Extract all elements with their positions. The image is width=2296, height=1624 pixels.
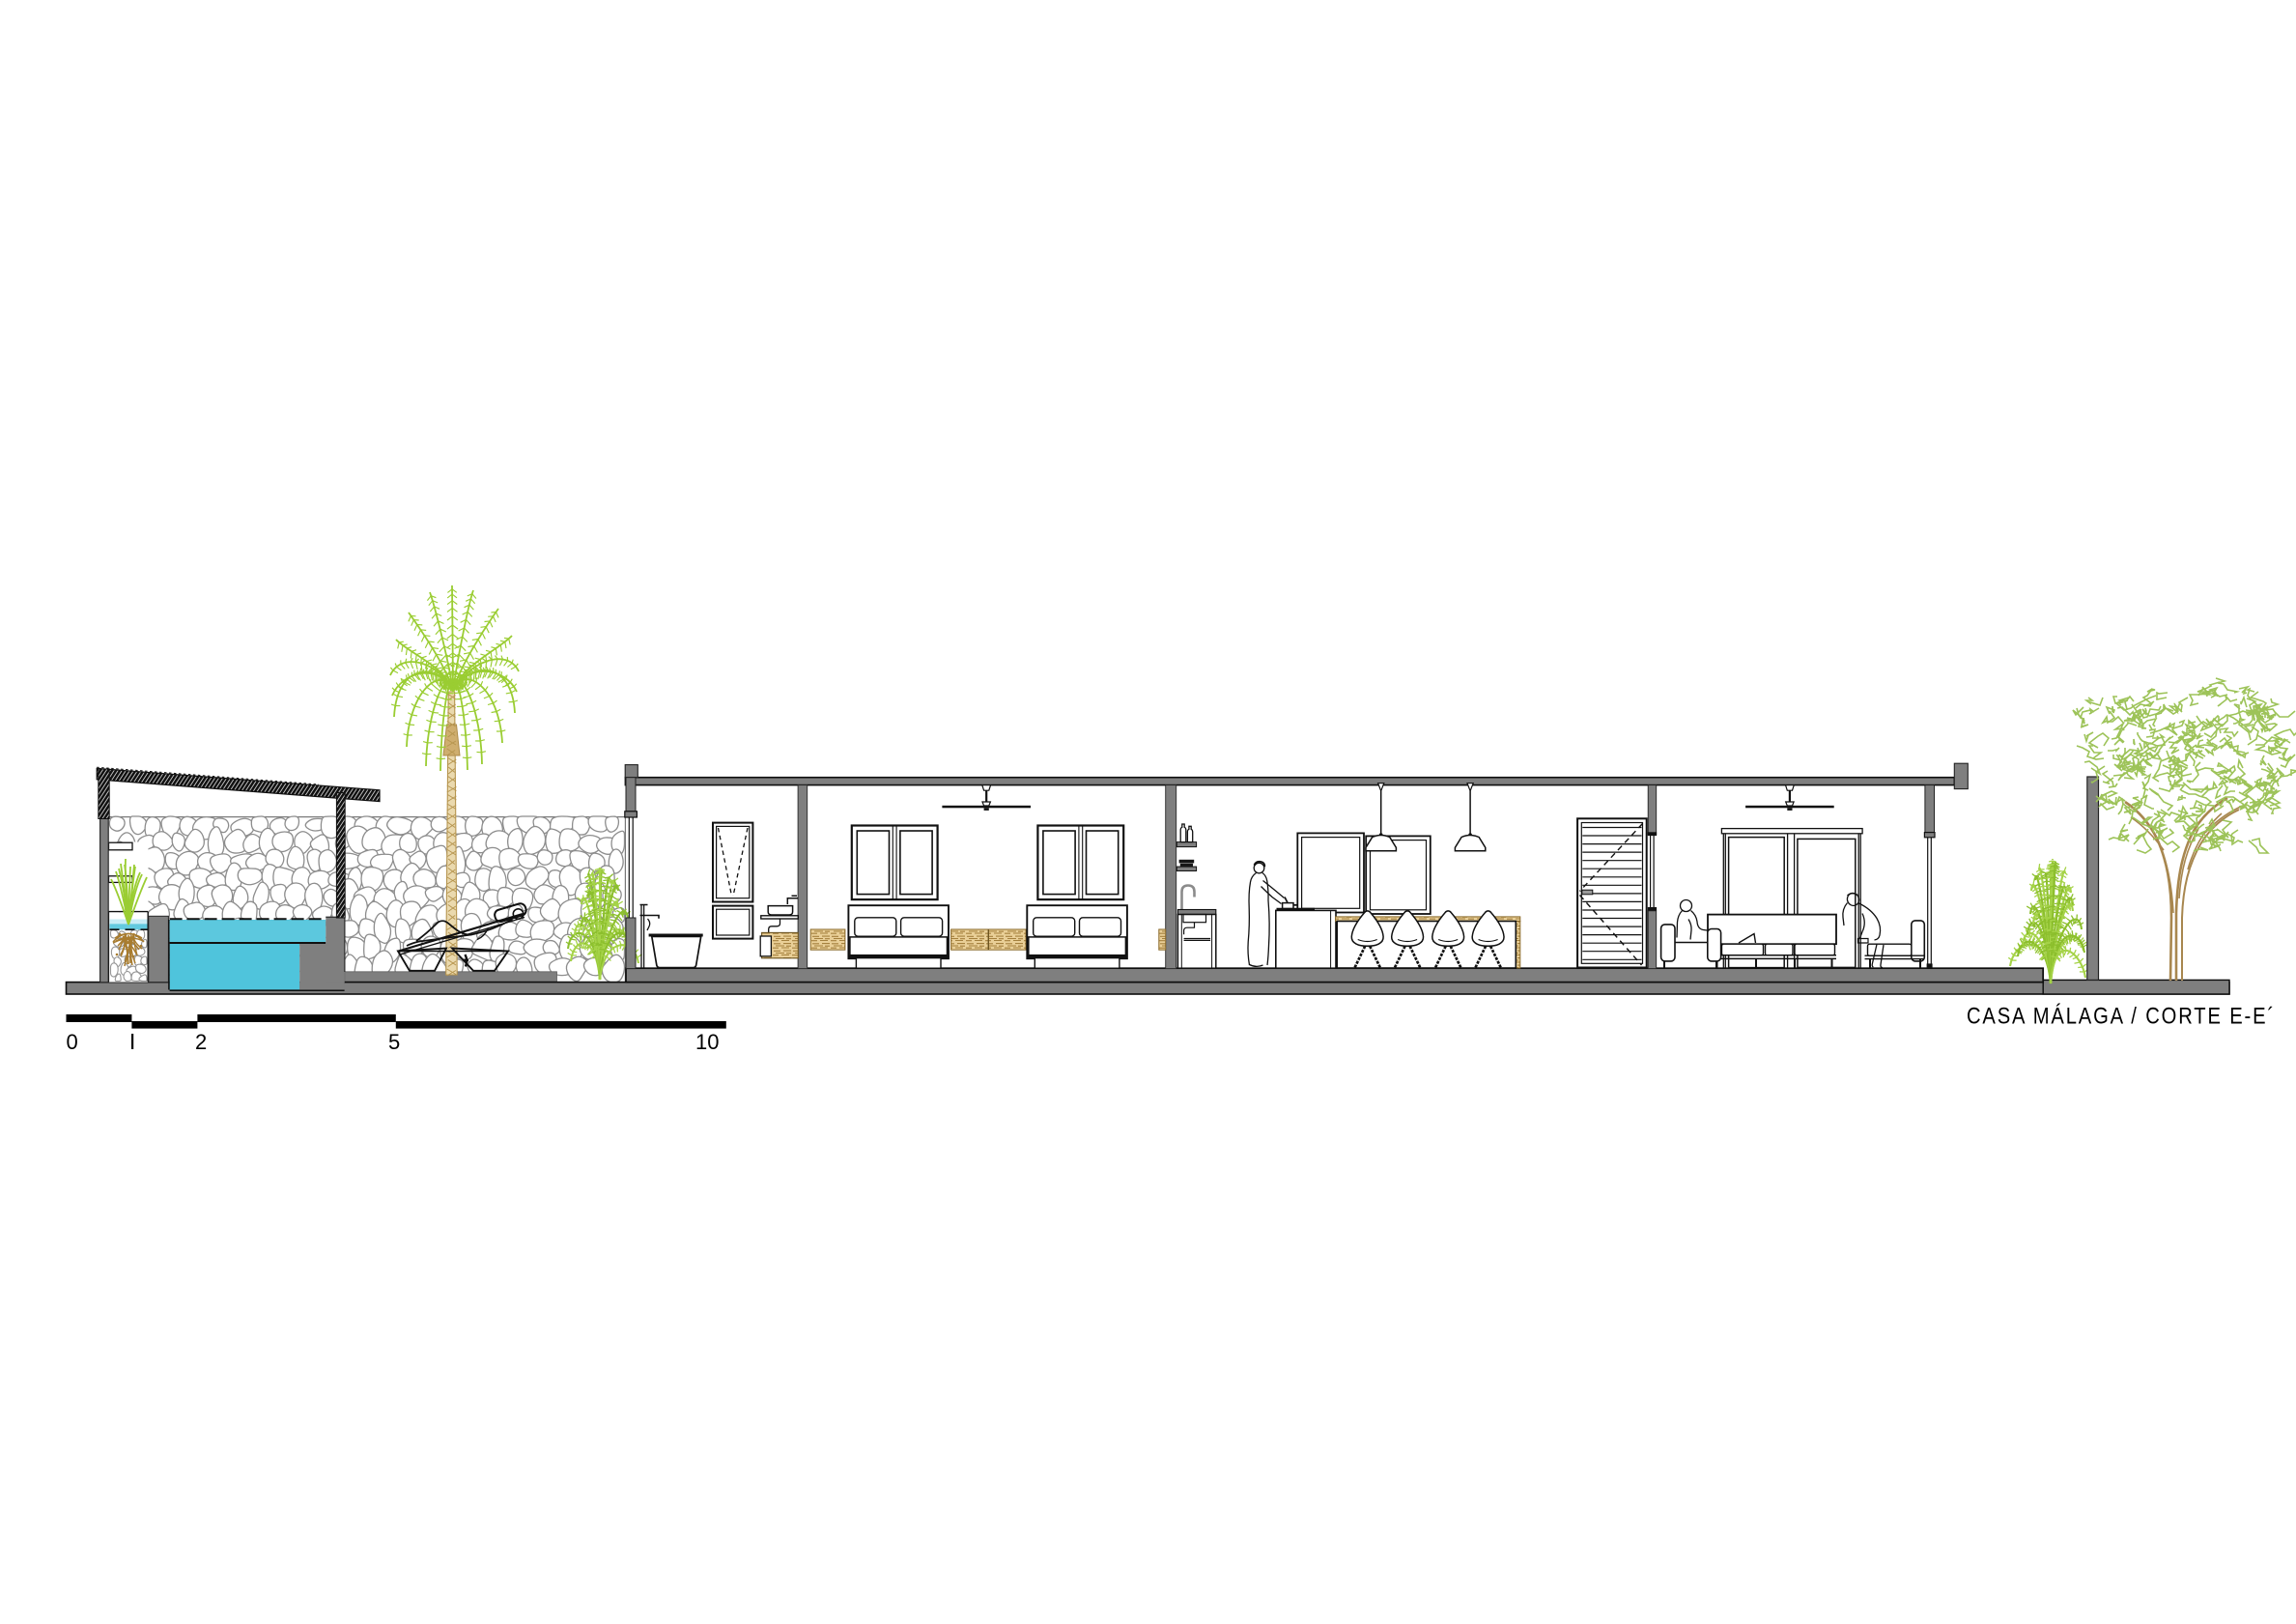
svg-text:2: 2 xyxy=(195,1030,207,1054)
svg-text:0: 0 xyxy=(67,1030,78,1054)
svg-text:10: 10 xyxy=(695,1030,719,1054)
svg-text:5: 5 xyxy=(388,1030,400,1054)
svg-text:CASA MÁLAGA / CORTE E-E´: CASA MÁLAGA / CORTE E-E´ xyxy=(1967,1004,2276,1030)
